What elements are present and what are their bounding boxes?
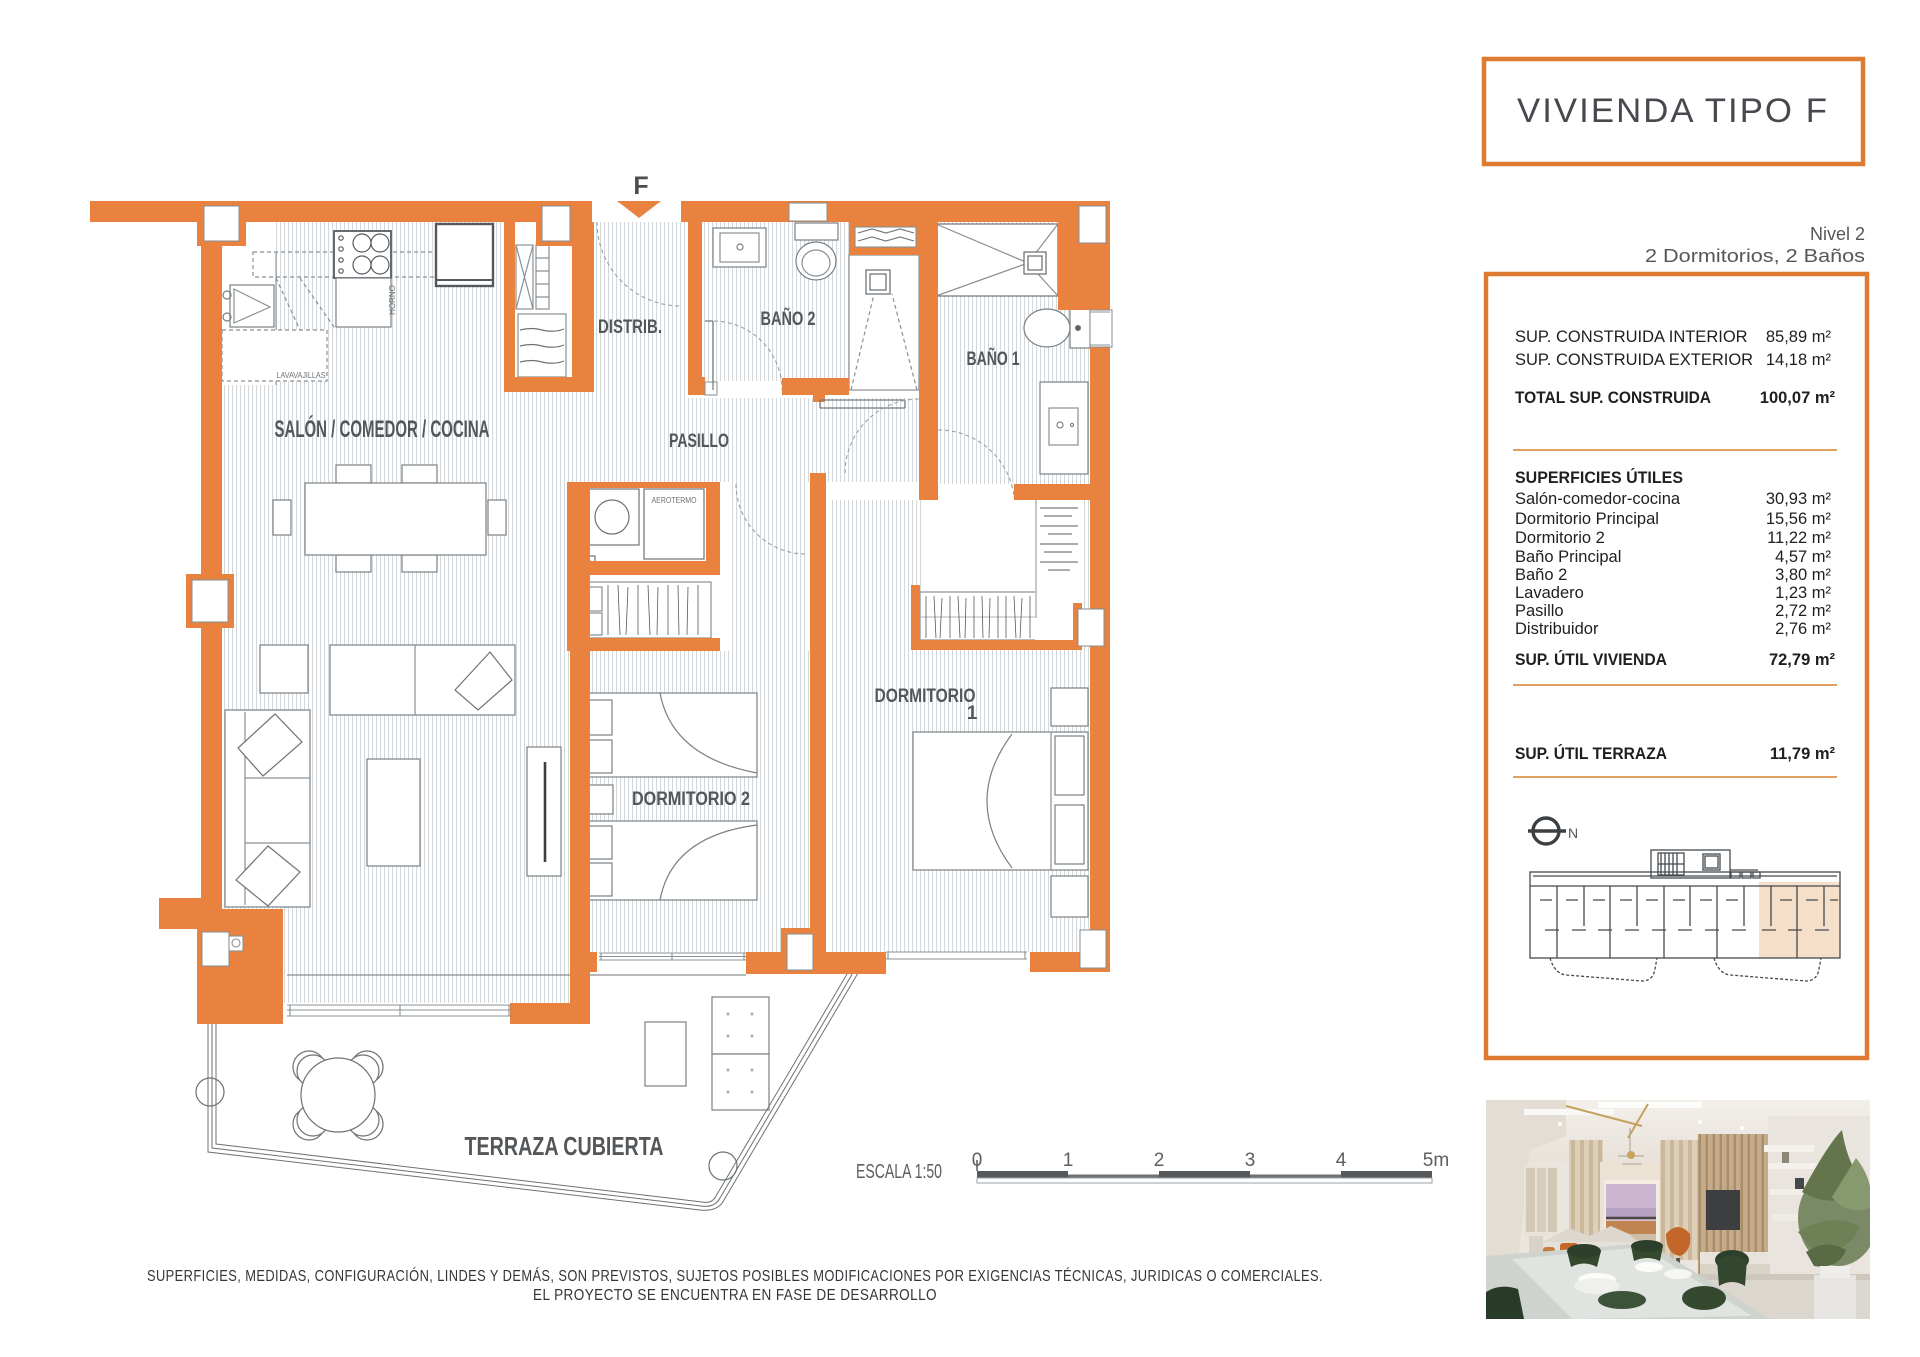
svg-text:SUP. ÚTIL TERRAZA: SUP. ÚTIL TERRAZA <box>1515 744 1667 763</box>
svg-text:14,18 m²: 14,18 m² <box>1766 351 1832 369</box>
svg-text:SUP. CONSTRUIDA EXTERIOR: SUP. CONSTRUIDA EXTERIOR <box>1515 351 1753 369</box>
svg-text:2 Dormitorios, 2 Baños: 2 Dormitorios, 2 Baños <box>1645 246 1865 266</box>
svg-text:72,79 m²: 72,79 m² <box>1769 651 1836 669</box>
svg-text:BAÑO 1: BAÑO 1 <box>967 348 1020 370</box>
svg-text:2,76 m²: 2,76 m² <box>1775 620 1831 638</box>
svg-text:1: 1 <box>967 703 978 724</box>
svg-text:Dormitorio 2: Dormitorio 2 <box>1515 529 1605 547</box>
svg-text:1: 1 <box>1063 1150 1074 1171</box>
svg-text:30,93 m²: 30,93 m² <box>1766 490 1832 508</box>
svg-text:2: 2 <box>1154 1150 1165 1171</box>
svg-text:85,89 m²: 85,89 m² <box>1766 328 1832 346</box>
svg-text:Baño Principal: Baño Principal <box>1515 548 1621 566</box>
svg-text:1,23 m²: 1,23 m² <box>1775 584 1831 602</box>
svg-text:SUPERFICIES, MEDIDAS, CONFIGUR: SUPERFICIES, MEDIDAS, CONFIGURACIÓN, LIN… <box>147 1266 1323 1285</box>
svg-text:AEROTERMO: AEROTERMO <box>652 495 697 505</box>
svg-text:Salón-comedor-cocina: Salón-comedor-cocina <box>1515 490 1681 508</box>
svg-text:5m: 5m <box>1423 1150 1449 1171</box>
svg-text:Lavadero: Lavadero <box>1515 584 1584 602</box>
svg-text:ESCALA 1:50: ESCALA 1:50 <box>856 1161 942 1183</box>
svg-text:4,57 m²: 4,57 m² <box>1775 548 1831 566</box>
svg-text:VIVIENDA TIPO F: VIVIENDA TIPO F <box>1517 92 1829 130</box>
svg-text:SUP. ÚTIL VIVIENDA: SUP. ÚTIL VIVIENDA <box>1515 650 1667 669</box>
svg-text:N: N <box>1568 825 1578 841</box>
svg-text:Distribuidor: Distribuidor <box>1515 620 1599 638</box>
svg-text:Baño 2: Baño 2 <box>1515 566 1567 584</box>
svg-text:DISTRIB.: DISTRIB. <box>598 317 662 338</box>
svg-text:PASILLO: PASILLO <box>669 431 729 452</box>
svg-text:HORNO: HORNO <box>388 285 397 315</box>
svg-text:SUP. CONSTRUIDA INTERIOR: SUP. CONSTRUIDA INTERIOR <box>1515 328 1748 346</box>
svg-text:F: F <box>633 172 648 200</box>
svg-text:BAÑO 2: BAÑO 2 <box>761 308 816 330</box>
svg-text:LAVAVAJILLAS: LAVAVAJILLAS <box>277 370 326 380</box>
svg-text:15,56 m²: 15,56 m² <box>1766 510 1832 528</box>
svg-text:11,79 m²: 11,79 m² <box>1770 745 1836 763</box>
svg-text:11,22 m²: 11,22 m² <box>1767 529 1831 547</box>
svg-text:4: 4 <box>1336 1150 1347 1171</box>
svg-text:Dormitorio Principal: Dormitorio Principal <box>1515 510 1659 528</box>
svg-text:SALÓN / COMEDOR / COCINA: SALÓN / COMEDOR / COCINA <box>275 415 490 443</box>
svg-text:EL PROYECTO SE ENCUENTRA EN FA: EL PROYECTO SE ENCUENTRA EN FASE DE DESA… <box>533 1287 937 1304</box>
svg-text:Nivel 2: Nivel 2 <box>1810 224 1865 244</box>
svg-text:DORMITORIO 2: DORMITORIO 2 <box>632 789 750 810</box>
svg-text:TERRAZA CUBIERTA: TERRAZA CUBIERTA <box>465 1131 664 1161</box>
svg-text:3: 3 <box>1245 1150 1256 1171</box>
svg-text:2,72 m²: 2,72 m² <box>1775 602 1831 620</box>
svg-text:DORMITORIO: DORMITORIO <box>875 686 976 707</box>
svg-text:100,07 m²: 100,07 m² <box>1760 389 1836 407</box>
svg-text:Pasillo: Pasillo <box>1515 602 1564 620</box>
svg-text:TOTAL SUP. CONSTRUIDA: TOTAL SUP. CONSTRUIDA <box>1515 389 1711 407</box>
svg-text:3,80 m²: 3,80 m² <box>1775 566 1831 584</box>
svg-text:SUPERFICIES ÚTILES: SUPERFICIES ÚTILES <box>1515 468 1683 487</box>
